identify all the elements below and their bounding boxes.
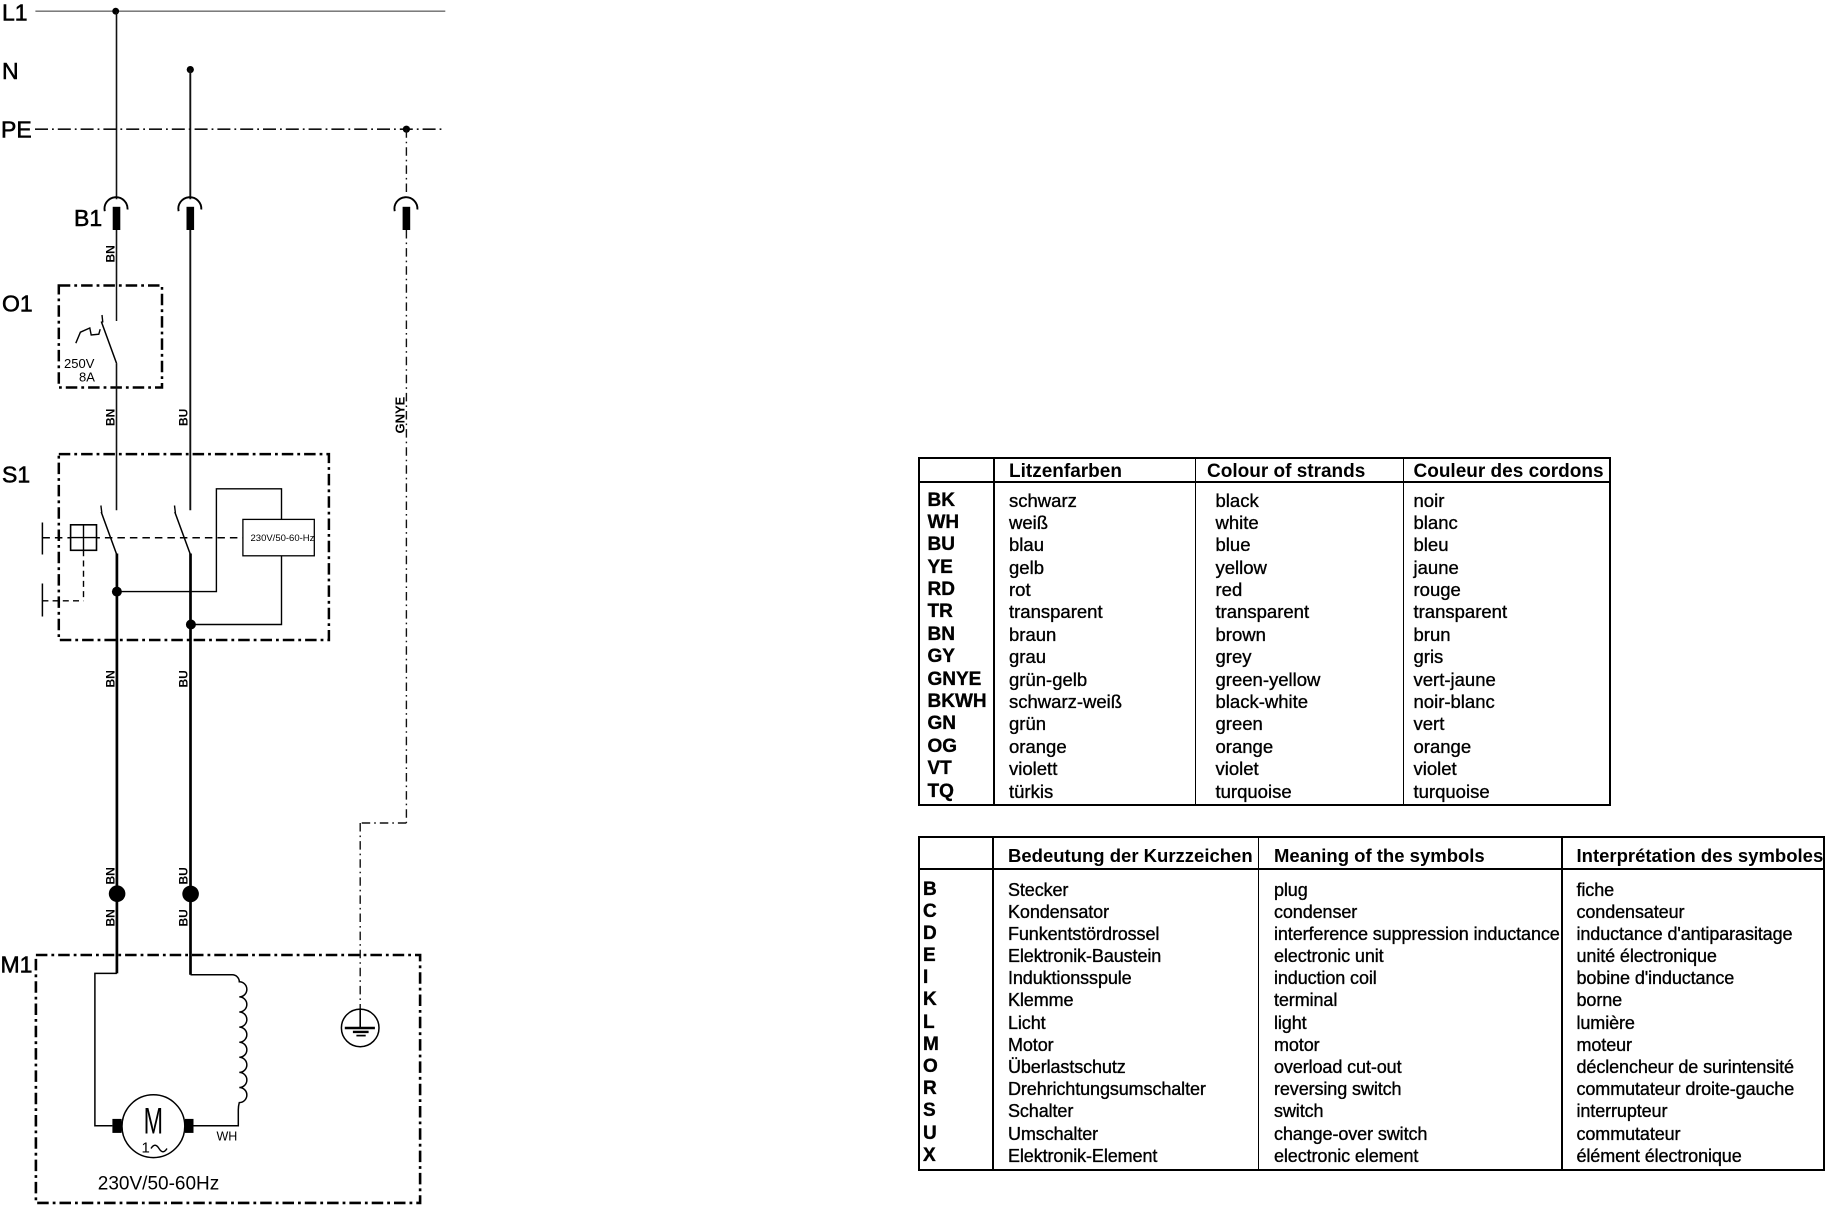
svg-text:GNYE: GNYE [393,396,408,433]
svg-text:230V/50-60Hz: 230V/50-60Hz [98,1174,219,1195]
svg-text:PE: PE [1,116,32,142]
svg-text:230V/50-60-Hz: 230V/50-60-Hz [251,533,315,544]
svg-text:1: 1 [142,1140,150,1157]
svg-text:BU: BU [177,670,191,687]
svg-text:N: N [2,58,19,84]
svg-text:BN: BN [104,909,118,926]
svg-text:8A: 8A [79,370,95,385]
svg-text:O1: O1 [2,290,33,316]
svg-text:M: M [144,1100,163,1142]
svg-text:WH: WH [217,1130,238,1144]
svg-text:BN: BN [104,867,118,884]
svg-text:BU: BU [177,409,191,426]
svg-text:L1: L1 [2,0,28,26]
svg-text:BU: BU [177,909,191,926]
svg-text:BU: BU [177,867,191,884]
svg-text:BN: BN [104,245,118,262]
svg-text:M1: M1 [1,952,33,978]
svg-text:S1: S1 [2,462,30,488]
svg-text:B1: B1 [74,205,102,231]
svg-text:BN: BN [104,409,118,426]
svg-text:BN: BN [104,670,118,687]
